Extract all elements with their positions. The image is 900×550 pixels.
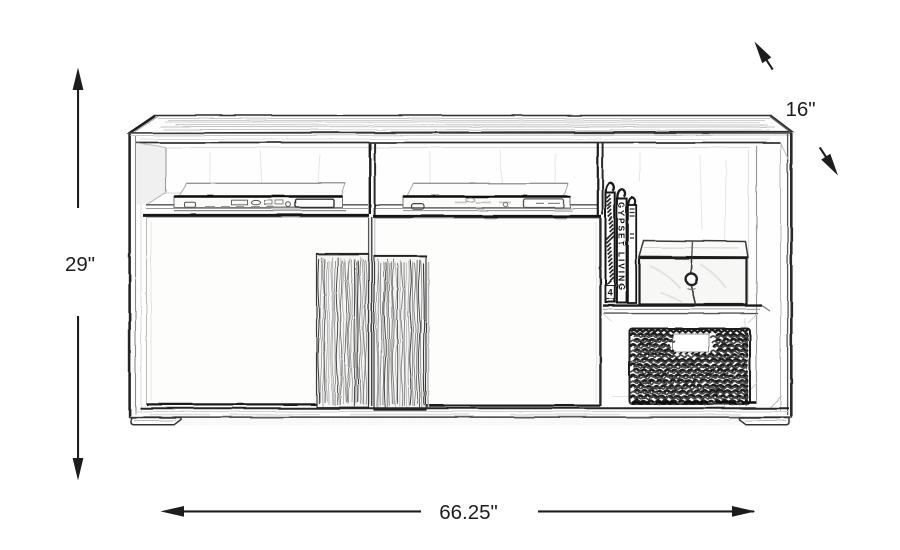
svg-text:66.25": 66.25" (439, 501, 498, 524)
svg-text:29": 29" (65, 253, 95, 276)
svg-text:16": 16" (785, 98, 815, 121)
svg-text:4: 4 (608, 288, 613, 298)
svg-text:GYPSET LIVING: GYPSET LIVING (617, 202, 627, 290)
